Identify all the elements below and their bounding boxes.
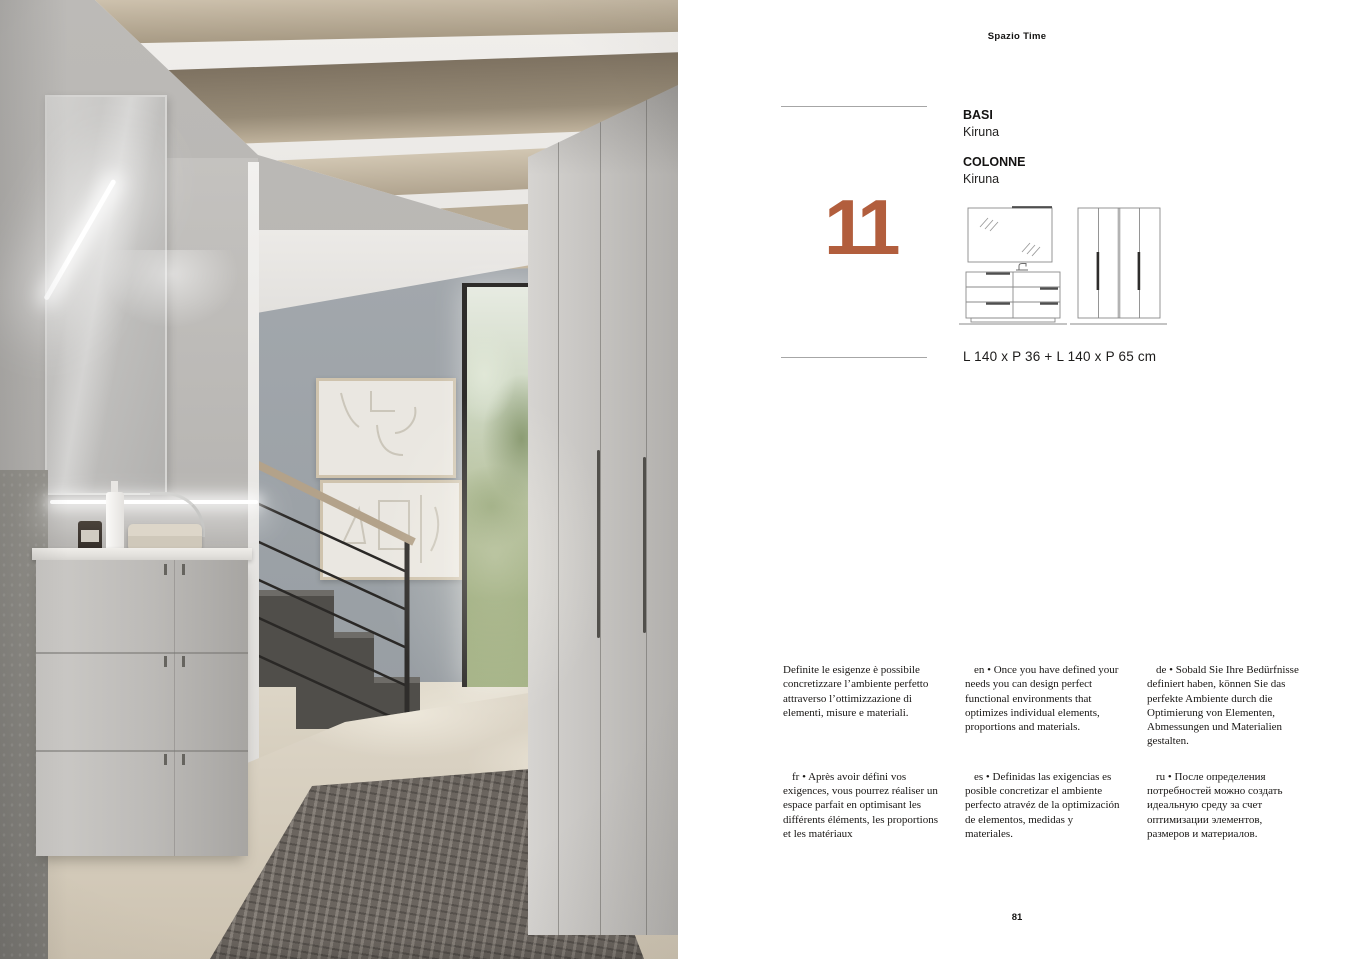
led-light-glow	[96, 250, 246, 370]
description-it: Definite le esigenze è possibile concret…	[783, 663, 941, 749]
faucet-icon	[1016, 264, 1028, 271]
wood-beam	[70, 0, 678, 45]
description-es: es • Definidas las exigencias es posible…	[965, 770, 1123, 841]
brand-header: Spazio Time	[678, 31, 1356, 42]
artwork-frame	[320, 480, 462, 580]
dimensions-text: L 140 x P 36 + L 140 x P 65 cm	[963, 349, 1156, 364]
mirror-drawing	[968, 207, 1052, 262]
description-de: de • Sobald Sie Ihre Bedürfnisse definie…	[1147, 663, 1305, 749]
basi-finish: Kiruna	[963, 124, 1026, 141]
colonne-group: COLONNE Kiruna	[963, 154, 1026, 188]
technical-drawing	[956, 200, 1170, 328]
wardrobe-drawing	[1070, 208, 1167, 324]
description-fr: fr • Après avoir défini vos exigences, v…	[783, 770, 941, 841]
vanity-countertop	[32, 548, 252, 560]
product-info: BASI Kiruna COLONNE Kiruna	[963, 107, 1026, 188]
descriptions-grid: Definite le esigenze è possibile concret…	[783, 663, 1305, 841]
divider-line-bottom	[781, 357, 927, 358]
description-en: en • Once you have defined your needs yo…	[965, 663, 1123, 749]
cosmetic-jar	[78, 521, 102, 551]
towel-stack	[128, 524, 202, 551]
vanity-cabinet	[36, 560, 248, 856]
catalog-spread: Spazio Time BASI Kiruna COLONNE Kiruna 1…	[0, 0, 1356, 959]
pump-bottle	[106, 492, 124, 551]
colonne-finish: Kiruna	[963, 171, 1026, 188]
basi-label: BASI	[963, 107, 1026, 124]
basi-group: BASI Kiruna	[963, 107, 1026, 141]
composition-number: 11	[824, 188, 894, 266]
catalog-page: Spazio Time BASI Kiruna COLONNE Kiruna 1…	[678, 0, 1356, 959]
stair-step	[258, 632, 374, 687]
wardrobe-handle	[643, 457, 646, 633]
door-jamb	[248, 162, 259, 862]
garden-window	[462, 283, 535, 687]
page-number: 81	[678, 912, 1356, 923]
colonne-label: COLONNE	[963, 154, 1026, 171]
hallway-photo	[0, 0, 678, 959]
stair-step	[258, 590, 334, 640]
wardrobe-doors	[528, 85, 678, 935]
divider-line-top	[781, 106, 927, 107]
wardrobe-handle	[597, 450, 600, 638]
vanity-drawing	[959, 272, 1067, 324]
description-ru: ru • После определения потребностей можн…	[1147, 770, 1305, 841]
artwork-frame	[316, 378, 456, 478]
